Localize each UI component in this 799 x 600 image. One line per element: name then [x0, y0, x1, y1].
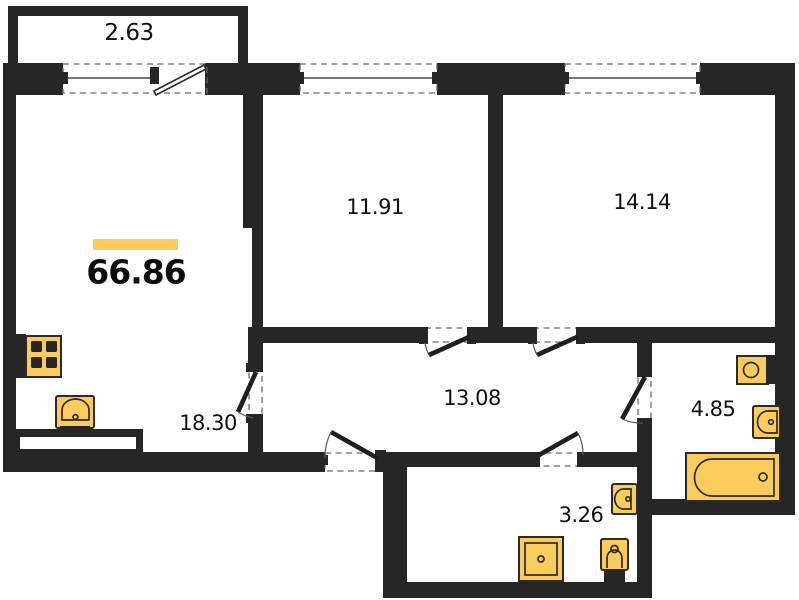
- door-bathroom: [622, 368, 652, 427]
- walls: [3, 6, 795, 598]
- total-area-label: 66.86: [86, 253, 185, 292]
- kitchen-sink-icon: [56, 396, 94, 437]
- balcony-window-and-door: [59, 64, 207, 95]
- kitchen-living-area-label: 18.30: [179, 411, 237, 435]
- floorplan-drawing: [0, 0, 799, 600]
- door-room-a: [419, 327, 476, 355]
- floorplan: 2.63 66.86 11.91 14.14 13.08 18.30 4.85 …: [0, 0, 799, 600]
- door-wc: [531, 433, 586, 467]
- balcony-door-leaf: [154, 65, 206, 95]
- wc-area-label: 3.26: [559, 503, 604, 527]
- room-b-area-label: 14.14: [613, 190, 671, 214]
- stove-icon: [16, 334, 61, 378]
- bathtub-icon: [686, 453, 780, 501]
- window-room-b: [560, 64, 705, 93]
- entrance-door: [321, 432, 386, 472]
- bathroom-toilet-icon: [753, 406, 780, 438]
- wc-sink-icon: [612, 484, 637, 514]
- door-room-b: [528, 327, 585, 355]
- hallway-area-label: 13.08: [443, 386, 501, 410]
- balcony-area-label: 2.63: [104, 20, 153, 46]
- shower-tray-icon: [519, 537, 563, 581]
- washing-machine-icon: [737, 355, 780, 384]
- door-kitchen-living: [238, 363, 263, 423]
- bathroom-area-label: 4.85: [691, 397, 736, 421]
- wc-toilet-icon: [601, 539, 628, 582]
- window-room-a: [295, 64, 441, 93]
- total-area-accent-bar: [93, 239, 178, 250]
- room-a-area-label: 11.91: [346, 195, 404, 219]
